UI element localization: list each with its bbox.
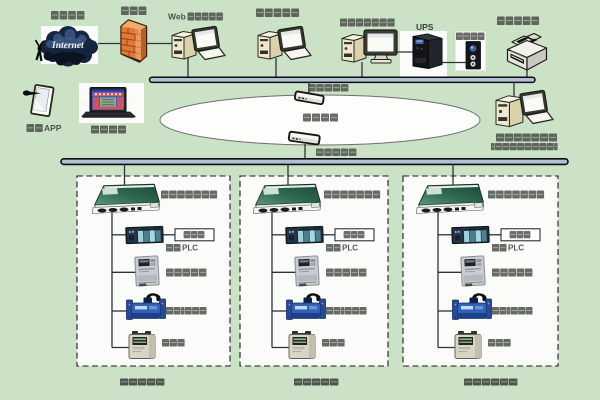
svg-text:Web: Web: [168, 12, 186, 22]
svg-text:PLC: PLC: [182, 244, 198, 253]
svg-text:APP: APP: [44, 123, 62, 133]
svg-text:Internet: Internet: [51, 41, 84, 51]
svg-text:UPS: UPS: [416, 22, 434, 32]
svg-text:PLC: PLC: [508, 244, 524, 253]
svg-text:PLC: PLC: [342, 244, 358, 253]
